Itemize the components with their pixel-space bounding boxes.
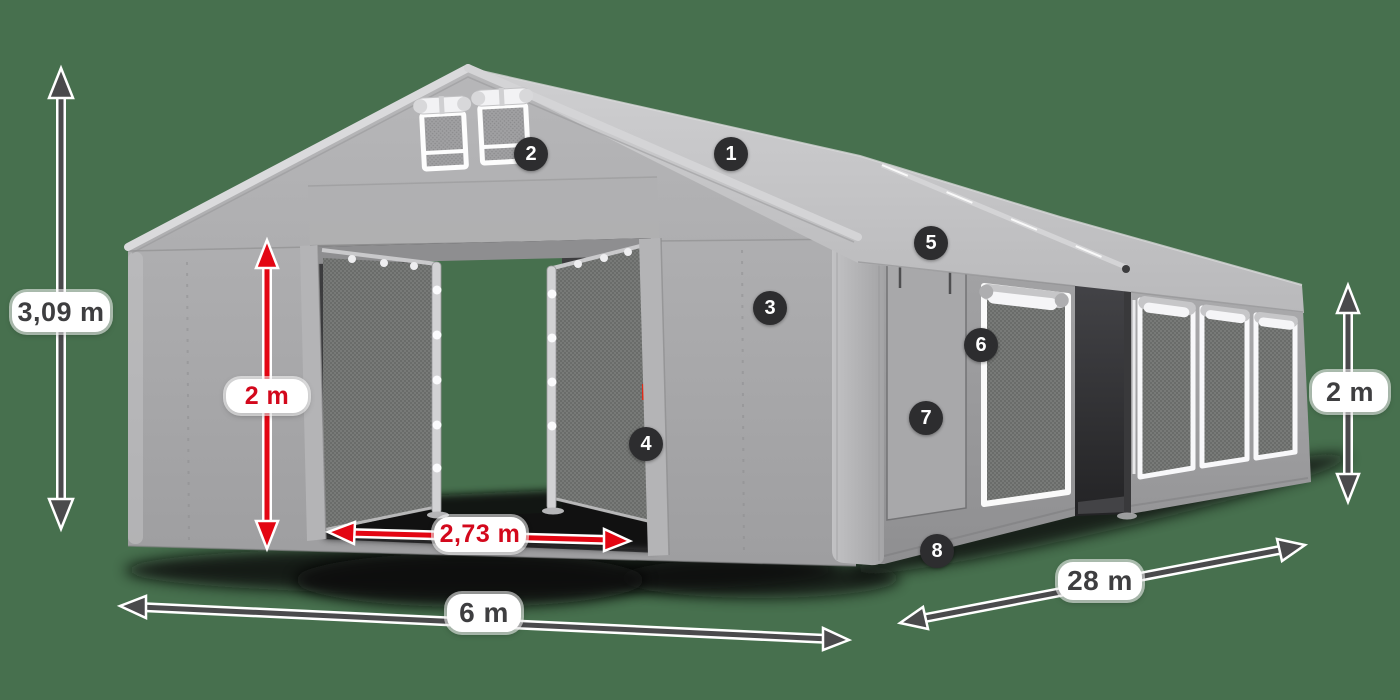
dimension-label-entrance-width: 2,73 m	[434, 517, 526, 552]
dimension-label-side-height: 2 m	[1312, 372, 1388, 412]
side-mesh-window	[978, 283, 1070, 504]
hotspot-badge-7[interactable]: 7	[909, 401, 943, 435]
far-mesh-window-3	[1253, 311, 1298, 458]
open-bay-gap	[1075, 262, 1137, 520]
tent-side-wall	[858, 240, 1075, 564]
far-mesh-window-2	[1199, 304, 1250, 466]
hotspot-badge-4[interactable]: 4	[629, 427, 663, 461]
entrance-mesh-door-left	[322, 250, 449, 532]
dimension-label-side-length: 28 m	[1058, 562, 1142, 600]
tent-illustration	[0, 0, 1400, 700]
hotspot-badge-1[interactable]: 1	[714, 137, 748, 171]
dimension-label-gable-width: 6 m	[447, 594, 521, 632]
roof-vent-left	[413, 95, 475, 170]
corner-column	[832, 240, 884, 565]
tent-dimension-diagram: 3,09 m 2 m 2,73 m 6 m 28 m 2 m 1 2 3 4 5…	[0, 0, 1400, 700]
hotspot-badge-3[interactable]: 3	[753, 291, 787, 325]
dimension-label-entrance-height: 2 m	[226, 379, 308, 413]
dimension-label-total-height: 3,09 m	[12, 292, 110, 332]
hotspot-badge-6[interactable]: 6	[964, 328, 998, 362]
far-mesh-window-1	[1137, 295, 1197, 477]
entrance-opening	[315, 238, 659, 553]
see-through-opening	[430, 250, 562, 518]
hotspot-badge-5[interactable]: 5	[914, 226, 948, 260]
hotspot-badge-8[interactable]: 8	[920, 534, 954, 568]
side-door-panel	[887, 260, 966, 520]
entrance-mesh-door-right	[542, 244, 655, 524]
hotspot-badge-2[interactable]: 2	[514, 137, 548, 171]
entrance-header	[308, 176, 659, 247]
